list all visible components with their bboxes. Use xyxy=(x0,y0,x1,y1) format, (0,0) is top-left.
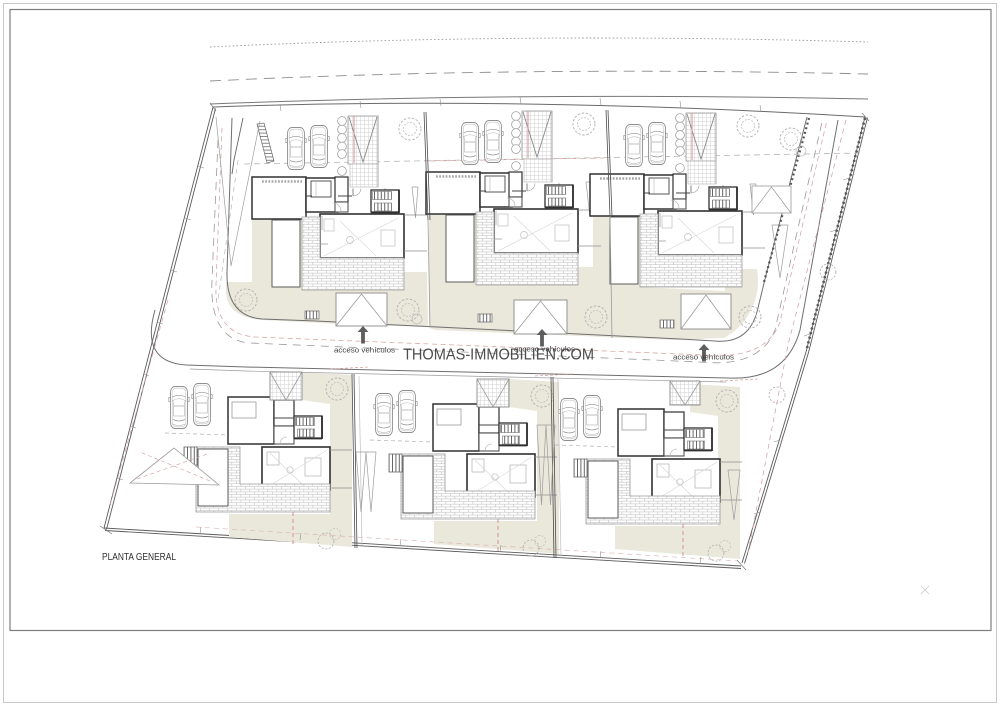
svg-text:acceso vehículos: acceso vehículos xyxy=(334,346,395,355)
svg-text:acceso vehículos: acceso vehículos xyxy=(673,353,734,362)
svg-text:PLANTA GENERAL: PLANTA GENERAL xyxy=(102,552,176,563)
svg-text:THOMAS-IMMOBILIEN.COM: THOMAS-IMMOBILIEN.COM xyxy=(403,347,594,364)
